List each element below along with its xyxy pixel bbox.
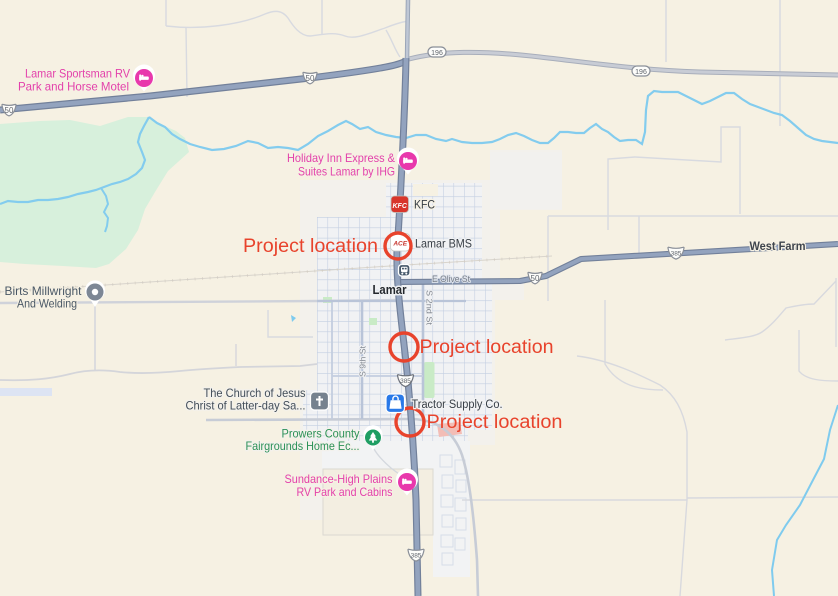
svg-text:Project location: Project location <box>427 412 563 433</box>
svg-text:Project location: Project location <box>420 337 554 358</box>
svg-text:Park and Horse Motel: Park and Horse Motel <box>18 80 129 94</box>
svg-text:385: 385 <box>671 251 682 258</box>
svg-text:ACE: ACE <box>392 240 407 247</box>
svg-text:KFC: KFC <box>393 203 408 210</box>
svg-text:196: 196 <box>431 50 443 57</box>
svg-text:Fairgrounds Home Ec...: Fairgrounds Home Ec... <box>246 439 360 453</box>
svg-text:50: 50 <box>306 74 315 83</box>
svg-text:S 9th St: S 9th St <box>358 345 368 377</box>
svg-text:E Olive St: E Olive St <box>432 274 471 284</box>
svg-text:50: 50 <box>531 274 540 283</box>
svg-text:Lamar BMS: Lamar BMS <box>415 237 472 251</box>
svg-text:Project location: Project location <box>243 236 378 257</box>
svg-text:And Welding: And Welding <box>17 297 77 311</box>
svg-text:Lamar Sportsman RV: Lamar Sportsman RV <box>25 67 130 81</box>
svg-text:West Farm: West Farm <box>750 239 806 253</box>
svg-text:385: 385 <box>411 553 422 560</box>
svg-text:196: 196 <box>635 69 647 76</box>
svg-text:Lamar: Lamar <box>373 283 407 297</box>
svg-text:S 2nd St: S 2nd St <box>425 290 435 326</box>
svg-text:KFC: KFC <box>414 198 435 212</box>
svg-text:Christ of Latter-day Sa...: Christ of Latter-day Sa... <box>186 399 306 413</box>
svg-text:50: 50 <box>5 106 14 115</box>
svg-text:RV Park and Cabins: RV Park and Cabins <box>297 485 393 499</box>
svg-text:Tractor Supply Co.: Tractor Supply Co. <box>412 399 503 411</box>
svg-text:Suites Lamar by IHG: Suites Lamar by IHG <box>298 165 395 179</box>
svg-text:385: 385 <box>400 378 411 385</box>
svg-text:Holiday Inn Express &: Holiday Inn Express & <box>287 151 395 165</box>
svg-text:Sundance-High Plains: Sundance-High Plains <box>285 472 393 486</box>
